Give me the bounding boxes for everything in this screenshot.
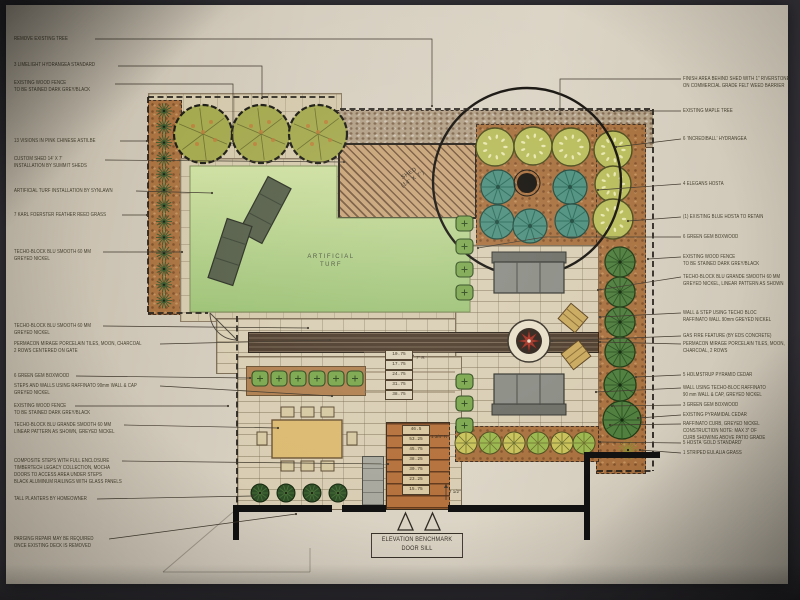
annotation-right-17: 1 STRIPED EULALIA GRASS (683, 450, 742, 457)
shed-area-label: SHED (14' X 7') (396, 164, 426, 190)
wall-elevation-box: 31.75 (385, 380, 413, 390)
annotation-line: GREYED NICKEL (14, 330, 91, 337)
annotation-line: GREYED NICKEL (14, 256, 91, 263)
annotation-left-4: CUSTOM SHED 14' X 7'INSTALLATION BY SUMM… (14, 156, 87, 170)
annotation-line: EXISTING WOOD FENCE (14, 80, 90, 87)
deck-elevation-box: 23.25 (402, 475, 430, 485)
annotation-line: TO BE STAINED DARK GREY/BLACK (14, 410, 90, 417)
annotation-right-11: 5 HOLMSTRUP PYRAMID CEDAR (683, 372, 752, 379)
annotation-left-7: TECHO-BLOCK BLU SMOOTH 60 MMGREYED NICKE… (14, 249, 91, 263)
annotation-left-5: ARTIFICIAL TURF INSTALLATION BY SYNLAWN (14, 188, 113, 195)
annotation-line: GREYED NICKEL, LINEAR PATTERN AS SHOWN (683, 281, 784, 288)
annotation-line: 5 HOLMSTRUP PYRAMID CEDAR (683, 372, 752, 379)
annotation-line: TECHO-BLOCK BLU GRANDE SMOOTH 60 MM (683, 274, 784, 281)
deck-elevation-box: 46.5 (402, 425, 430, 435)
annotation-right-6: EXISTING WOOD FENCETO BE STAINED DARK GR… (683, 254, 759, 268)
annotation-left-11: STEPS AND WALLS USING RAFFINATO 90mm WAL… (14, 383, 137, 397)
deck-elevation-box: 53.25 (402, 435, 430, 445)
annotation-left-16: PARGING REPAIR MAY BE REQUIREDONCE EXIST… (14, 536, 93, 550)
benchmark-line2: DOOR SILL (372, 545, 462, 554)
annotation-right-16: 5 HOSTA 'GOLD STANDARD' (683, 440, 742, 447)
annotation-line: STEPS AND WALLS USING RAFFINATO 90mm WAL… (14, 383, 137, 390)
annotation-line: 6 GREEN GEM BOXWOOD (683, 234, 738, 241)
annotation-right-15: RAFFINATO CURB, GREYED NICKELCONSTRUCTIO… (683, 421, 765, 442)
annotation-line: RAFFINATO WALL 90mm GREYED NICKEL (683, 317, 771, 324)
annotation-line: 4 ELEGANS HOSTA (683, 181, 724, 188)
annotation-left-9: PERMACON MIRAGE PORCELAIN TILES, MOON, C… (14, 341, 142, 355)
deck-elevation-box: 45.75 (402, 445, 430, 455)
annotation-line: CHARCOAL, 2 ROWS (683, 348, 785, 355)
annotation-line: DOORS TO ACCESS AREA UNDER STEPS (14, 472, 122, 479)
annotation-line: 2 ROWS CENTERED ON GATE (14, 348, 142, 355)
turf-label-line2: TURF (296, 261, 366, 269)
annotation-line: 90 mm WALL & CAP, GREYED NICKEL (683, 392, 766, 399)
annotation-layer: ARTIFICIAL TURF SHED (14' X 7') ELEVATIO… (0, 0, 800, 600)
annotation-line: 6 GREEN GEM BOXWOOD (14, 373, 69, 380)
annotation-left-6: 7 KARL FOERSTER FEATHER REED GRASS (14, 212, 106, 219)
wall-elevation-box: 17.75 (385, 360, 413, 370)
annotation-line: CONSTRUCTION NOTE: MAX 3" OF (683, 428, 765, 435)
annotation-line: EXISTING PYRAMIDAL CEDAR (683, 412, 747, 419)
annotation-right-8: WALL & STEP USING TECHO BLOCRAFFINATO WA… (683, 310, 771, 324)
benchmark-line1: ELEVATION BENCHMARK (372, 536, 462, 545)
annotation-left-13: TECHO-BLOCK BLU GRANDE SMOOTH 60 MMLINEA… (14, 422, 115, 436)
annotation-line: WALL & STEP USING TECHO BLOC (683, 310, 771, 317)
annotation-right-12: WALL USING TECHO-BLOC RAFFINATO90 mm WAL… (683, 385, 766, 399)
turf-area-label: ARTIFICIAL TURF (296, 253, 366, 269)
annotation-line: 7 KARL FOERSTER FEATHER REED GRASS (14, 212, 106, 219)
annotation-line: WALL USING TECHO-BLOC RAFFINATO (683, 385, 766, 392)
elevation-benchmark-note: ELEVATION BENCHMARK DOOR SILL (371, 533, 463, 558)
annotation-line: TECHO-BLOCK BLU SMOOTH 60 MM (14, 249, 91, 256)
annotation-right-3: 4 ELEGANS HOSTA (683, 181, 724, 188)
wall-riser-note: 7" R (416, 355, 425, 360)
annotation-line: COMPOSITE STEPS WITH FULL ENCLOSURE (14, 458, 122, 465)
annotation-line: ONCE EXISTING DECK IS REMOVED (14, 543, 93, 550)
annotation-line: CUSTOM SHED 14' X 7' (14, 156, 87, 163)
annotation-right-9: GAS FIRE FEATURE (BY EDS CONCRETE) (683, 333, 772, 340)
annotation-left-14: COMPOSITE STEPS WITH FULL ENCLOSURETIMBE… (14, 458, 122, 486)
annotation-line: 3 LIMELIGHT HYDRANGEA STANDARD (14, 62, 95, 69)
annotation-line: REMOVE EXISTING TREE (14, 36, 68, 43)
annotation-line: TO BE STAINED DARK GREY/BLACK (14, 87, 90, 94)
wall-elevation-box: 38.75 (385, 390, 413, 400)
annotation-right-0: FINISH AREA BEHIND SHED WITH 1" RIVERSTO… (683, 76, 790, 90)
annotation-line: TECHO-BLOCK BLU SMOOTH 60 MM (14, 323, 91, 330)
turf-label-line1: ARTIFICIAL (296, 253, 366, 261)
annotation-line: 13 VISIONS IN PINK CHINESE ASTILBE (14, 138, 96, 145)
annotation-line: FINISH AREA BEHIND SHED WITH 1" RIVERSTO… (683, 76, 790, 83)
deck-elevation-box: 38.25 (402, 455, 430, 465)
annotation-left-1: 3 LIMELIGHT HYDRANGEA STANDARD (14, 62, 95, 69)
annotation-line: GAS FIRE FEATURE (BY EDS CONCRETE) (683, 333, 772, 340)
annotation-line: ARTIFICIAL TURF INSTALLATION BY SYNLAWN (14, 188, 113, 195)
annotation-right-4: (1) EXISTING BLUE HOSTA TO RETAIN (683, 214, 763, 221)
annotation-line: 6 'INCREDIBALL' HYDRANGEA (683, 136, 747, 143)
wall-elevation-box: 24.75 (385, 370, 413, 380)
annotation-line: ON COMMERCIAL GRADE FELT WEED BARRIER (683, 83, 790, 90)
annotation-line: (1) EXISTING BLUE HOSTA TO RETAIN (683, 214, 763, 221)
annotation-right-1: EXISTING MAPLE TREE (683, 108, 733, 115)
annotation-line: LINEAR PATTERN AS SHOWN, GREYED NICKEL (14, 429, 115, 436)
annotation-line: EXISTING WOOD FENCE (683, 254, 759, 261)
annotation-line: 3 GREEN GEM BOXWOOD (683, 402, 738, 409)
wall-elevation-box: 10.75 (385, 350, 413, 360)
annotation-line: RAFFINATO CURB, GREYED NICKEL (683, 421, 765, 428)
annotation-left-3: 13 VISIONS IN PINK CHINESE ASTILBE (14, 138, 96, 145)
annotation-right-5: 6 GREEN GEM BOXWOOD (683, 234, 738, 241)
deck-elevation-box: 30.75 (402, 465, 430, 475)
annotation-line: PERMACON MIRAGE PORCELAIN TILES, MOON, C… (14, 341, 142, 348)
annotation-line: TALL PLANTERS BY HOMEOWNER (14, 496, 87, 503)
annotation-line: TECHO-BLOCK BLU GRANDE SMOOTH 60 MM (14, 422, 115, 429)
annotation-left-15: TALL PLANTERS BY HOMEOWNER (14, 496, 87, 503)
annotation-line: GREYED NICKEL (14, 390, 137, 397)
annotation-left-0: REMOVE EXISTING TREE (14, 36, 68, 43)
annotation-right-7: TECHO-BLOCK BLU GRANDE SMOOTH 60 MMGREYE… (683, 274, 784, 288)
annotation-right-2: 6 'INCREDIBALL' HYDRANGEA (683, 136, 747, 143)
annotation-line: TO BE STAINED DARK GREY/BLACK (683, 261, 759, 268)
annotation-left-2: EXISTING WOOD FENCETO BE STAINED DARK GR… (14, 80, 90, 94)
deck-elevation-box: 15.75 (402, 485, 430, 495)
annotation-line: BLACK ALUMINUM RAILINGS WITH GLASS PANEL… (14, 479, 122, 486)
annotation-line: PERMACON MIRAGE PORCELAIN TILES, MOON, (683, 341, 785, 348)
annotation-right-10: PERMACON MIRAGE PORCELAIN TILES, MOON,CH… (683, 341, 785, 355)
annotation-line: EXISTING MAPLE TREE (683, 108, 733, 115)
deck-riser-note: 1 3/4" R (431, 434, 447, 439)
annotation-left-10: 6 GREEN GEM BOXWOOD (14, 373, 69, 380)
deck-riser-note2: 7 1/2" (449, 489, 461, 494)
annotation-line: EXISTING WOOD FENCE (14, 403, 90, 410)
annotation-line: 1 STRIPED EULALIA GRASS (683, 450, 742, 457)
annotation-line: TIMBERTECH LEGACY COLLECTION, MOCHA (14, 465, 122, 472)
annotation-right-14: EXISTING PYRAMIDAL CEDAR (683, 412, 747, 419)
annotation-left-8: TECHO-BLOCK BLU SMOOTH 60 MMGREYED NICKE… (14, 323, 91, 337)
annotation-left-12: EXISTING WOOD FENCETO BE STAINED DARK GR… (14, 403, 90, 417)
annotation-line: 5 HOSTA 'GOLD STANDARD' (683, 440, 742, 447)
photo-of-landscape-plan: ARTIFICIAL TURF SHED (14' X 7') ELEVATIO… (0, 0, 800, 600)
annotation-line: PARGING REPAIR MAY BE REQUIRED (14, 536, 93, 543)
annotation-right-13: 3 GREEN GEM BOXWOOD (683, 402, 738, 409)
annotation-line: INSTALLATION BY SUMMIT SHEDS (14, 163, 87, 170)
